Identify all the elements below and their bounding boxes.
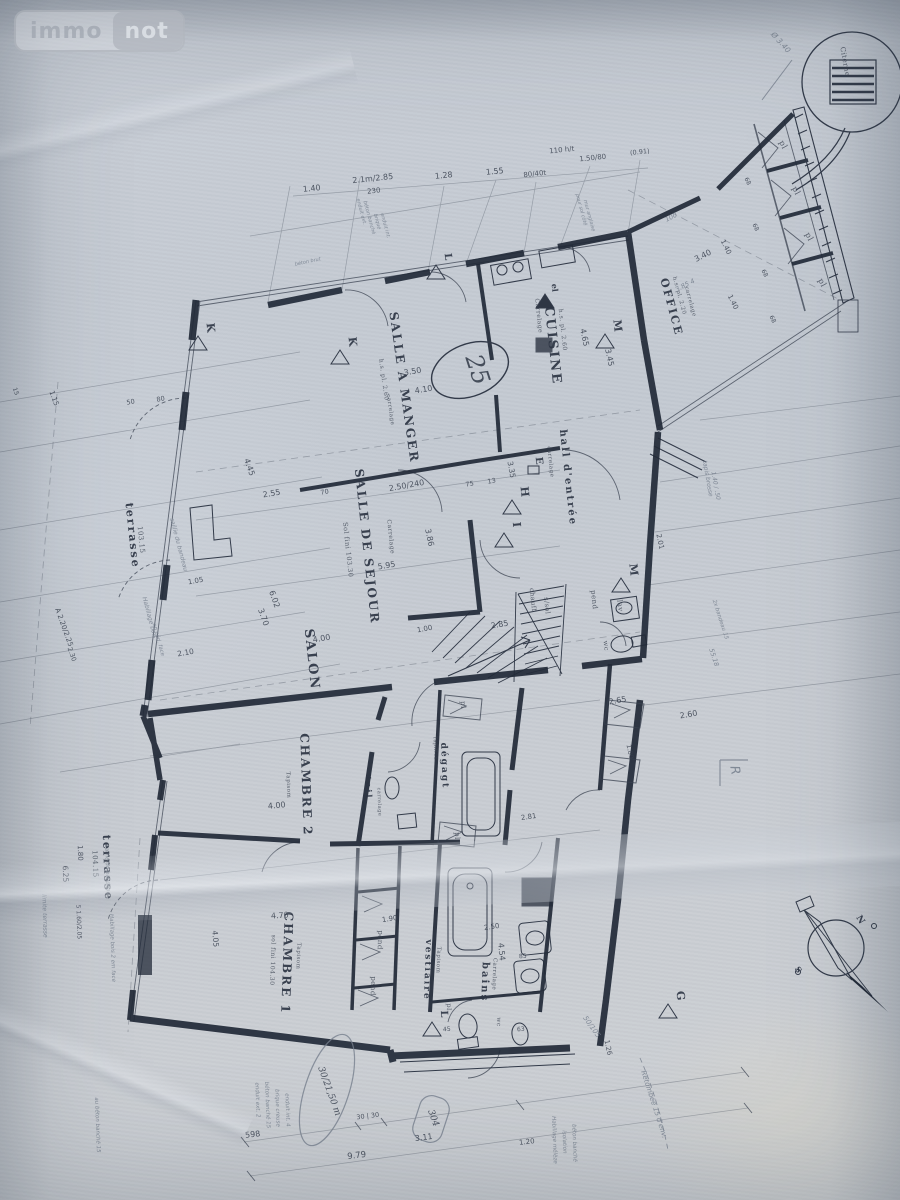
- label-d8040: 80/40t: [523, 169, 547, 179]
- hand-annotations: [288, 331, 668, 1152]
- label-c1_sub2: sol fini 104.30: [268, 935, 277, 986]
- label-h3021: 30/21,50 m: [315, 1065, 342, 1117]
- label-vestiaire: vestiaire: [421, 938, 433, 1001]
- label-d85: 85: [519, 953, 527, 961]
- compass-rose: [796, 896, 889, 1012]
- label-bains_sub: Carrelage: [490, 958, 497, 991]
- label-vest_sub: Tapisom: [435, 947, 442, 974]
- label-degagt: dégagt: [438, 742, 451, 789]
- label-d311: 3.11: [414, 1132, 433, 1143]
- label-d250b: 2.50: [483, 922, 500, 932]
- label-pl_d: pl: [816, 277, 828, 289]
- label-d68c: 68: [759, 268, 769, 278]
- label-d230: 230: [367, 186, 381, 195]
- label-K2: K: [346, 336, 360, 347]
- label-d3030: 30 | 30: [356, 1111, 380, 1122]
- label-d260: 2.60: [679, 709, 698, 721]
- label-d201: 2.01: [654, 533, 665, 550]
- label-d255: 2.55: [262, 488, 281, 500]
- label-d140c: 1.40: [726, 293, 740, 311]
- label-pMel1: Habillage mélèze: [550, 1116, 559, 1164]
- label-pCol1: enduit ext. 2: [253, 1082, 260, 1118]
- label-K1: K: [204, 322, 218, 333]
- label-sds_sub2: Sol fini 103.30: [341, 522, 355, 578]
- label-pRet: Retombée 15 d'env.: [639, 1070, 668, 1139]
- label-pl_c: pl: [803, 231, 815, 243]
- label-d155: 1.55: [485, 166, 504, 177]
- label-salle_de_sejour: SALLE DE SEJOUR: [352, 468, 382, 625]
- label-sds_sub1: Carrelage: [385, 519, 396, 554]
- logo-immo-text: immo: [16, 12, 113, 50]
- label-d230b: 2.30: [66, 646, 78, 662]
- label-d602: 6.02: [267, 589, 282, 609]
- label-dA220: A 2.20/2.25: [53, 607, 74, 648]
- label-d140: 1.40: [302, 183, 321, 194]
- label-d100: 1.00: [416, 624, 433, 635]
- label-pl_a: pl: [777, 139, 789, 151]
- label-d345: 3.45: [603, 348, 616, 367]
- label-M1: M: [610, 319, 624, 332]
- label-H1: H: [517, 486, 531, 498]
- label-wc2: wc: [495, 1017, 502, 1027]
- label-d405: 4.05: [210, 930, 220, 948]
- label-pCol5: au béton banché 15: [93, 1097, 102, 1153]
- label-sam_sub2: carrelage: [385, 394, 395, 426]
- label-pMel2: isolation: [561, 1130, 568, 1154]
- construction-lines: [0, 160, 900, 1176]
- label-d13: 13: [487, 476, 497, 485]
- label-d265: 2.65: [608, 695, 627, 707]
- label-bains: bains: [478, 962, 490, 1003]
- fixtures: [385, 32, 900, 1072]
- label-cS: S: [793, 964, 805, 974]
- label-pend2: pend: [376, 930, 385, 950]
- label-d350: 3.50: [403, 366, 422, 378]
- label-d400s: 4.00: [312, 633, 331, 645]
- label-d140b: 1.40: [719, 238, 733, 256]
- label-lav: lav: [615, 599, 624, 612]
- label-citerne: Citerne: [838, 46, 851, 77]
- label-pCol2: béton banché 15: [263, 1082, 272, 1129]
- label-el: el: [550, 283, 561, 292]
- label-d15080: 1.50/80: [579, 153, 607, 164]
- label-toil_sub: carrelage: [375, 787, 382, 816]
- label-pDiam: Ø 3.40: [768, 29, 792, 55]
- label-d15: 15: [11, 387, 20, 397]
- label-hall: hall d'entrée: [557, 429, 578, 527]
- logo-not-text: not: [113, 12, 183, 50]
- label-pCol3: brique creuse: [273, 1089, 280, 1128]
- label-L2: L: [438, 1010, 449, 1017]
- label-L1: L: [442, 253, 454, 261]
- label-pSail1: saillie du bandeau: [168, 517, 189, 572]
- label-d595: 5.95: [377, 560, 396, 572]
- label-d110: 110 h/t: [549, 145, 575, 156]
- label-E1: E: [533, 456, 545, 465]
- label-d340: 3.40: [693, 248, 713, 264]
- label-d75: 75: [465, 479, 475, 488]
- label-pMel3: béton banché: [570, 1124, 578, 1163]
- label-d105: 1.05: [187, 576, 204, 587]
- label-d5518: 55.18: [707, 647, 720, 667]
- label-d281: 2.81: [520, 812, 537, 822]
- label-M2: M: [626, 563, 640, 576]
- label-R1: R: [726, 765, 742, 777]
- label-d091: (0.91): [630, 147, 650, 157]
- label-d50a: 50: [126, 397, 136, 406]
- label-pCol4: enduit int. 4: [283, 1093, 290, 1127]
- label-d126: 1.26: [602, 1039, 613, 1056]
- label-d68d: 68: [767, 314, 777, 324]
- label-d335: 3.35: [506, 461, 518, 479]
- label-d128: 1.28: [434, 170, 453, 181]
- label-soussol: s/sol: [542, 597, 552, 615]
- label-d80a: 80: [156, 394, 166, 403]
- label-d410: 4.10: [414, 384, 433, 396]
- label-p50105: 50/105: [581, 1014, 602, 1039]
- label-d454: 4.54: [496, 943, 507, 962]
- immonot-watermark-logo: immo not: [14, 10, 185, 52]
- label-chambre2: CHAMBRE 2: [297, 733, 315, 837]
- floorplan-drawing: CUISINECarrelageh.s. pl. 2.60OFFICEcarre…: [0, 0, 900, 1200]
- label-d445: 4.45: [242, 457, 257, 477]
- label-d21m: 2.1m/2.85: [352, 172, 394, 185]
- label-d386: 3.86: [423, 528, 436, 547]
- label-pend3: pend: [369, 976, 378, 996]
- label-pBand: 2x bandeau 15: [711, 599, 730, 641]
- label-d180r: 1.80: [625, 744, 636, 760]
- label-degagt_sub: Tapiflex: [432, 736, 439, 760]
- label-c2_sub: Tapisom: [285, 772, 292, 799]
- label-pl_e: pl: [459, 701, 467, 709]
- label-d70: 70: [320, 487, 330, 496]
- label-wc1: wc: [601, 640, 610, 651]
- label-d63: 63: [517, 1026, 525, 1034]
- label-pend1: pend: [589, 590, 599, 610]
- label-chauff: chauff: [528, 588, 538, 612]
- label-chambre1: CHAMBRE 1: [278, 911, 296, 1015]
- dimension-ticks: [241, 1067, 752, 1181]
- label-pHab2: Habillage bois 2 em face: [108, 914, 116, 983]
- label-d210: 2.10: [177, 647, 195, 659]
- label-pl_f: pl: [453, 832, 461, 840]
- label-d465: 4.65: [578, 328, 591, 347]
- label-d68a: 68: [742, 176, 752, 186]
- label-d285: 2.85: [490, 619, 509, 631]
- label-d400c: 4.00: [267, 800, 286, 811]
- label-cN: N: [853, 914, 866, 926]
- plan-labels: CUISINECarrelageh.s. pl. 2.60OFFICEcarre…: [11, 29, 866, 1164]
- label-d370: 3.70: [256, 607, 271, 627]
- label-d45: 45: [443, 1026, 451, 1034]
- label-pBrut: béton brut: [294, 255, 322, 268]
- label-G1: G: [674, 990, 688, 1001]
- label-h304: 304: [425, 1109, 440, 1129]
- label-toil: toil: [364, 776, 375, 799]
- terrace-door-arcs: [108, 398, 186, 920]
- label-c1_sub1: Tapisom: [295, 943, 302, 970]
- label-I1: I: [510, 521, 523, 527]
- label-d68b: 68: [750, 222, 760, 232]
- label-d120b: 1.20: [519, 1137, 535, 1147]
